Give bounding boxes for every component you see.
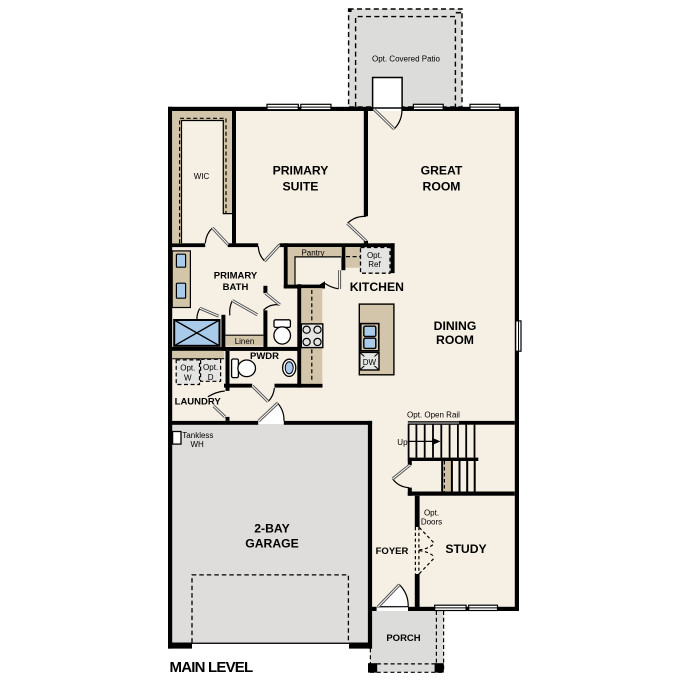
svg-text:GREAT: GREAT (421, 163, 463, 177)
svg-text:Opt.: Opt. (367, 251, 382, 260)
svg-text:KITCHEN: KITCHEN (350, 280, 404, 294)
svg-text:ROOM: ROOM (423, 179, 461, 193)
svg-text:PORCH: PORCH (386, 633, 420, 644)
svg-text:WH: WH (191, 440, 205, 449)
svg-text:Opt.: Opt. (180, 364, 195, 373)
svg-text:Opt.: Opt. (203, 363, 218, 372)
svg-text:2-BAY: 2-BAY (254, 521, 289, 535)
svg-text:Linen: Linen (235, 337, 255, 346)
svg-text:Opt. Open Rail: Opt. Open Rail (407, 411, 460, 420)
svg-text:DINING: DINING (434, 319, 477, 333)
svg-text:GARAGE: GARAGE (245, 537, 299, 551)
svg-text:PRIMARY: PRIMARY (273, 163, 329, 177)
svg-text:FOYER: FOYER (376, 546, 409, 557)
svg-text:DW: DW (363, 358, 377, 367)
svg-text:Up: Up (397, 438, 408, 447)
svg-text:STUDY: STUDY (445, 542, 486, 556)
svg-text:Tankless: Tankless (182, 431, 213, 440)
svg-text:BATH: BATH (223, 282, 249, 293)
svg-text:Opt. Covered Patio: Opt. Covered Patio (372, 55, 441, 64)
svg-text:MAIN LEVEL: MAIN LEVEL (170, 659, 253, 676)
svg-text:ROOM: ROOM (436, 333, 474, 347)
svg-text:Opt.: Opt. (424, 509, 439, 518)
svg-text:D: D (208, 373, 214, 382)
svg-text:Pantry: Pantry (301, 248, 324, 257)
svg-text:PRIMARY: PRIMARY (214, 271, 258, 282)
svg-text:LAUNDRY: LAUNDRY (175, 396, 222, 407)
svg-text:W: W (184, 374, 192, 383)
svg-text:SUITE: SUITE (283, 179, 319, 193)
svg-text:Doors: Doors (421, 518, 442, 527)
svg-text:Ref: Ref (368, 260, 381, 269)
svg-text:WIC: WIC (194, 172, 210, 181)
svg-text:PWDR: PWDR (250, 351, 279, 362)
